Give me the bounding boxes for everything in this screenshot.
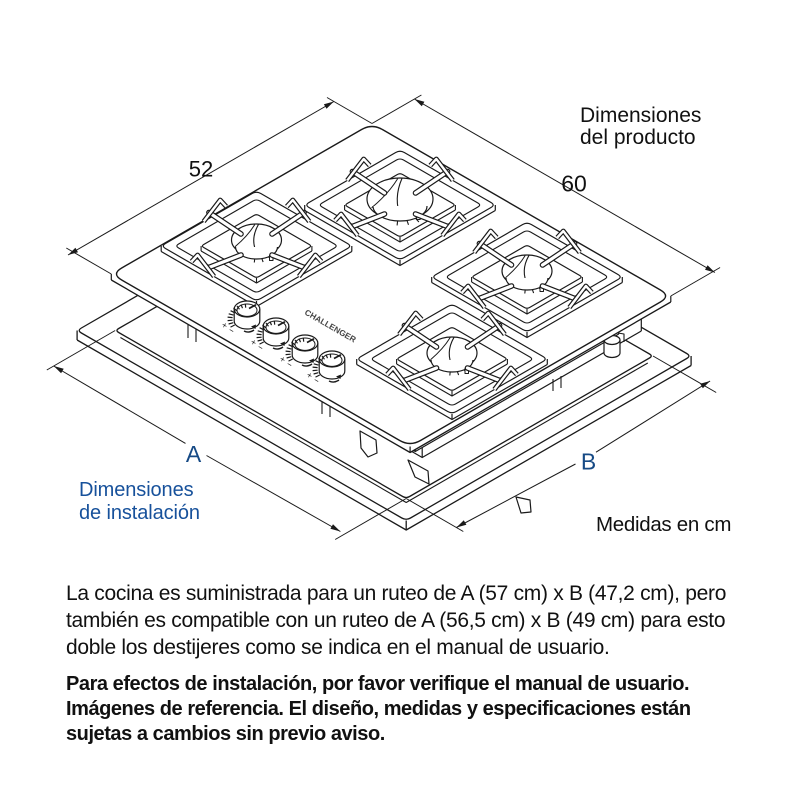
- svg-text:52: 52: [189, 157, 213, 182]
- svg-text:B: B: [581, 449, 596, 475]
- svg-text:60: 60: [561, 171, 587, 197]
- svg-text:A: A: [186, 441, 202, 467]
